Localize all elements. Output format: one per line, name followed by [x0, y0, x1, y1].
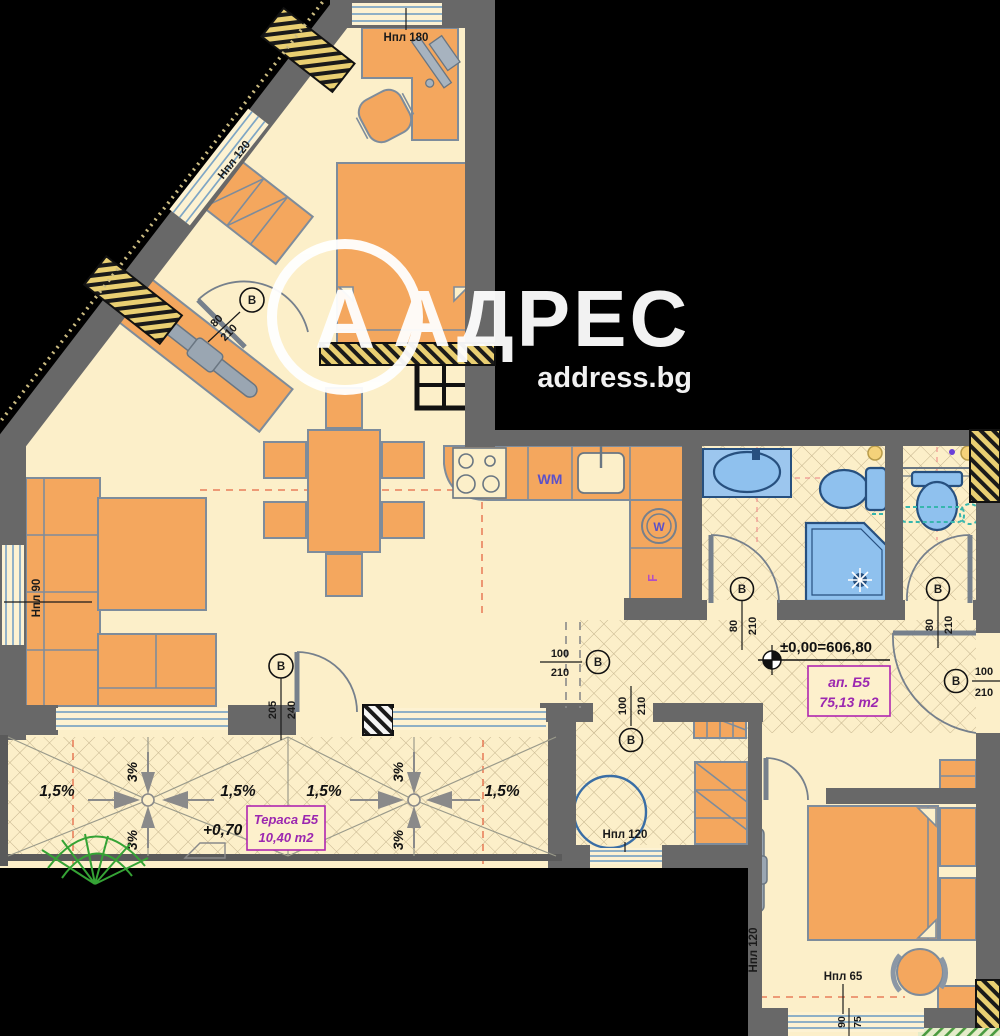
insulation-strip	[918, 1028, 1000, 1036]
lamp-icon	[868, 446, 882, 460]
window-storage	[590, 848, 662, 864]
terrace-name: Тераса Б5	[254, 812, 319, 827]
level-mark: ±0,00=606,80	[780, 639, 872, 656]
kitchen-sink-icon	[578, 446, 624, 493]
dining-chair	[264, 442, 306, 478]
bed-double-2	[808, 806, 938, 940]
svg-text:100: 100	[551, 648, 569, 660]
svg-text:90: 90	[836, 1016, 848, 1028]
window-label: Нпл 120	[603, 829, 648, 841]
svg-text:240: 240	[286, 701, 298, 719]
nightstand	[940, 808, 976, 866]
svg-text:F: F	[646, 574, 660, 582]
wardrobe	[695, 762, 747, 844]
boiler-label: W	[653, 520, 665, 534]
shaft-2x2	[417, 363, 471, 408]
slope-label: 3%	[390, 829, 406, 850]
slope-label: 1,5%	[306, 783, 342, 800]
window-left	[2, 545, 24, 645]
apartment-area-box: ап. Б5 75,13 m2	[808, 666, 890, 716]
window-living-1	[56, 708, 228, 730]
terrace-area: 10,40 m2	[259, 830, 315, 845]
dining-chair	[326, 554, 362, 596]
switch-dot-icon	[949, 449, 955, 455]
window-label: Нпл 90	[31, 579, 43, 618]
svg-text:В: В	[934, 584, 942, 596]
drain-point	[408, 794, 420, 806]
window-label: Нпл 65	[824, 971, 863, 983]
svg-text:210: 210	[975, 687, 993, 699]
column	[363, 705, 393, 735]
svg-text:80: 80	[924, 619, 936, 631]
svg-text:В: В	[627, 735, 635, 747]
window-living-2	[393, 708, 546, 730]
terrace-level: +0,70	[203, 822, 243, 839]
apartment-name: ап. Б5	[828, 674, 870, 690]
svg-text:100: 100	[975, 666, 993, 678]
dining-chair	[264, 502, 306, 538]
shower-corner	[806, 523, 888, 601]
apartment-area: 75,13 m2	[819, 694, 878, 710]
floor-plan-canvas: WM W F	[0, 0, 1000, 1036]
brand-name: АДРЕС	[393, 274, 690, 363]
slope-label: 1,5%	[484, 783, 520, 800]
drain-point	[142, 794, 154, 806]
slope-label: 1,5%	[39, 783, 75, 800]
svg-text:210: 210	[636, 697, 648, 715]
svg-text:210: 210	[747, 617, 759, 635]
svg-text:205: 205	[267, 701, 279, 719]
slope-label: 1,5%	[220, 783, 256, 800]
svg-text:210: 210	[943, 616, 955, 634]
window-top	[352, 3, 442, 25]
fridge-label: F	[646, 574, 660, 582]
svg-text:В: В	[594, 657, 602, 669]
svg-text:В: В	[277, 661, 285, 673]
window-label: Нпл 120	[748, 928, 760, 973]
svg-text:В: В	[738, 584, 746, 596]
toilet-bathroom	[820, 468, 886, 510]
svg-text:В: В	[248, 295, 256, 307]
stove-icon	[453, 448, 506, 498]
washing-machine-label: WM	[538, 471, 563, 487]
closet-top	[940, 760, 976, 792]
brand-logo-letter: А	[315, 272, 376, 366]
svg-text:100: 100	[617, 697, 629, 715]
terrace-area-box: Тераса Б5 10,40 m2	[247, 806, 325, 850]
column	[976, 980, 1000, 1036]
boiler-icon: W	[642, 509, 676, 543]
brand-site: address.bg	[537, 362, 692, 394]
svg-text:210: 210	[551, 667, 569, 679]
svg-text:75: 75	[852, 1016, 864, 1028]
dining-table	[308, 430, 380, 552]
dining-chair	[382, 502, 424, 538]
slope-label: 3%	[124, 761, 140, 782]
sink-counter	[703, 449, 791, 497]
slope-label: 3%	[390, 761, 406, 782]
svg-text:80: 80	[728, 620, 740, 632]
washbasin	[714, 452, 780, 492]
floor-plan-page: WM W F	[0, 0, 1000, 1036]
coffee-table	[98, 498, 206, 610]
svg-text:В: В	[952, 676, 960, 688]
column	[970, 430, 1000, 502]
nightstand	[940, 878, 976, 940]
dining-chair	[382, 442, 424, 478]
window-label: Нпл 180	[384, 32, 429, 44]
